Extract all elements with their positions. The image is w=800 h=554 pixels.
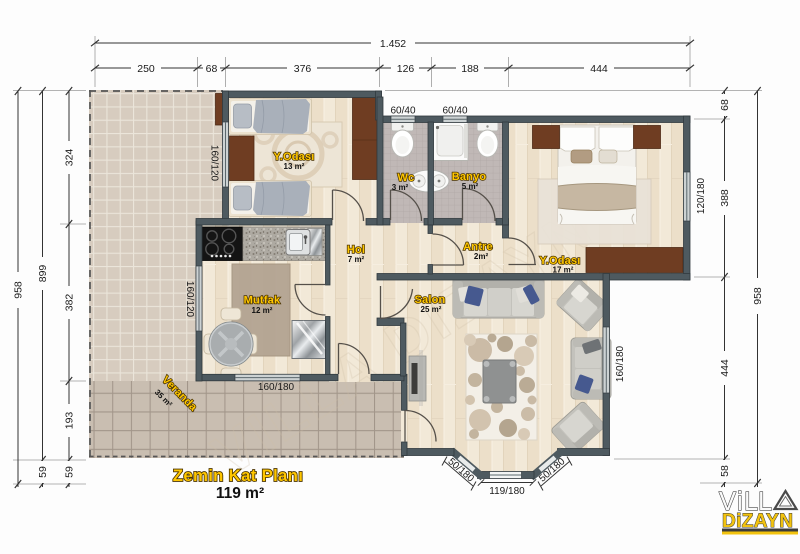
svg-text:Mutfak: Mutfak [244, 295, 281, 307]
svg-text:126: 126 [397, 63, 415, 75]
svg-text:3 m²: 3 m² [392, 183, 409, 192]
svg-text:7 m²: 7 m² [348, 255, 365, 264]
svg-text:444: 444 [590, 63, 608, 75]
svg-text:160/180: 160/180 [615, 345, 626, 382]
svg-text:13 m²: 13 m² [284, 162, 305, 171]
svg-text:382: 382 [64, 294, 76, 312]
svg-text:188: 188 [461, 63, 479, 75]
svg-text:958: 958 [752, 287, 764, 305]
svg-text:444: 444 [719, 359, 731, 377]
svg-text:60/40: 60/40 [442, 106, 467, 117]
svg-text:160/180: 160/180 [258, 382, 295, 393]
svg-text:160/120: 160/120 [184, 281, 195, 318]
svg-text:5 m²: 5 m² [462, 182, 479, 191]
svg-text:119 m²: 119 m² [216, 485, 264, 502]
svg-text:12 m²: 12 m² [252, 306, 273, 315]
svg-text:193: 193 [64, 412, 76, 430]
svg-text:25 m²: 25 m² [421, 305, 442, 314]
svg-text:58: 58 [719, 465, 731, 477]
svg-text:68: 68 [719, 99, 731, 111]
svg-text:250: 250 [137, 63, 155, 75]
svg-text:60/40: 60/40 [390, 106, 415, 117]
svg-text:59: 59 [37, 466, 49, 478]
svg-text:Zemin Kat Planı: Zemin Kat Planı [173, 466, 303, 485]
svg-text:68: 68 [206, 63, 218, 75]
svg-text:388: 388 [719, 189, 731, 207]
svg-text:119/180: 119/180 [489, 486, 525, 497]
svg-text:958: 958 [13, 281, 25, 299]
svg-text:2m²: 2m² [474, 252, 489, 261]
svg-text:324: 324 [64, 149, 76, 167]
svg-text:1.452: 1.452 [380, 38, 406, 50]
svg-text:17 m²: 17 m² [553, 266, 574, 275]
svg-text:59: 59 [64, 466, 76, 478]
svg-text:899: 899 [37, 265, 49, 283]
svg-text:376: 376 [294, 63, 312, 75]
svg-text:160/120: 160/120 [209, 145, 220, 182]
svg-text:120/180: 120/180 [696, 177, 707, 214]
